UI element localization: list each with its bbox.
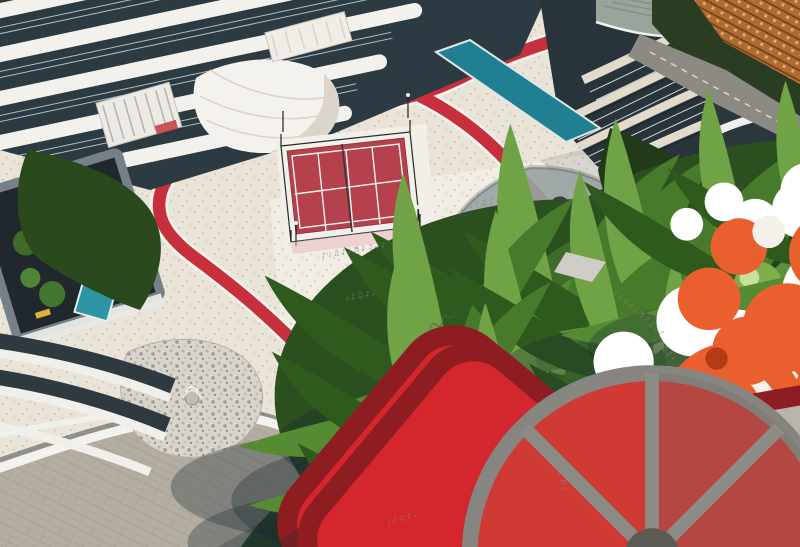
render-canvas: ♪♩♫♪♩♬♪♫♩♪ ♪♩♫♪♩♬♪♫♩♪ ♪♩♫♪♩♬♪♫♩♪ ♩♪♫♪♩ ♪… xyxy=(0,0,800,547)
resort-aerial-render: ♪♩♫♪♩♬♪♫♩♪ ♪♩♫♪♩♬♪♫♩♪ ♪♩♫♪♩♬♪♫♩♪ ♩♪♫♪♩ ♪… xyxy=(0,0,800,547)
pebble-garden xyxy=(120,339,262,457)
